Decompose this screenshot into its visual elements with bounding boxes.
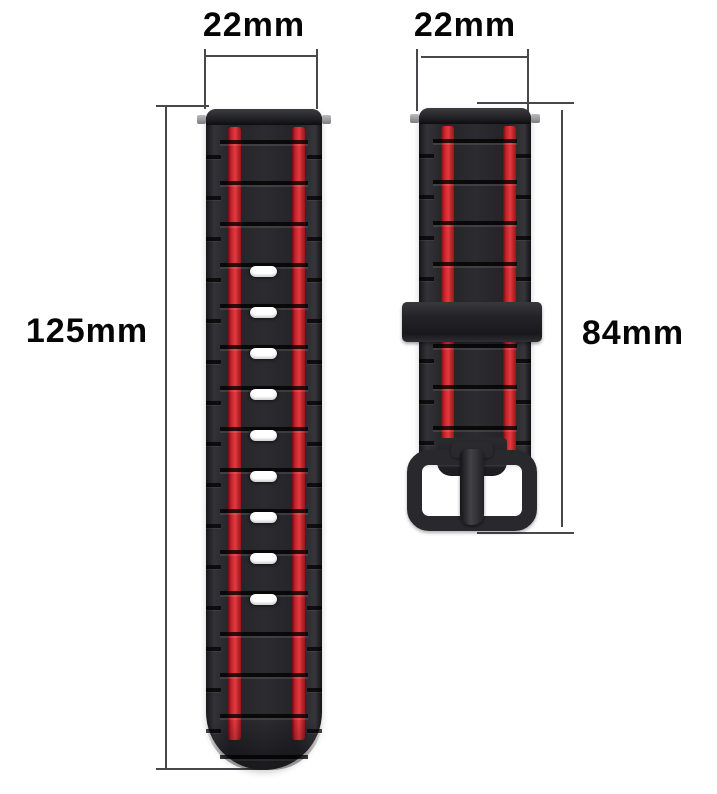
width-label-long-strap: 22mm <box>174 6 334 45</box>
length-label-long-strap: 125mm <box>7 312 167 351</box>
strap-edge-grooves <box>419 118 434 462</box>
spring-bar-pin <box>322 115 331 124</box>
product-dimension-diagram: 22mm 22mm 125mm 84mm <box>0 0 717 794</box>
spring-bar-pin <box>531 114 540 123</box>
keeper-loop <box>402 302 542 342</box>
width-label-short-strap: 22mm <box>385 6 545 45</box>
strap-edge-grooves <box>206 119 221 770</box>
spring-bar-pin <box>410 114 419 123</box>
extension-line-width-short-left <box>416 49 418 111</box>
strap-link-grooves <box>220 123 308 770</box>
extension-line-width-long-left <box>204 49 206 109</box>
strap-hole <box>250 266 277 277</box>
strap-link-grooves <box>433 122 517 462</box>
strap-edge-grooves <box>307 119 322 770</box>
strap-lug-end <box>419 108 531 124</box>
tick-line-length-short-top <box>477 102 574 104</box>
strap-hole <box>250 389 277 400</box>
watch-strap-long <box>206 109 322 770</box>
tick-line-length-short-bottom <box>477 532 574 534</box>
strap-hole <box>250 512 277 523</box>
strap-hole <box>250 594 277 605</box>
watch-strap-short <box>419 108 531 462</box>
dimension-line-length-long <box>165 107 167 769</box>
strap-hole <box>250 553 277 564</box>
dimension-line-width-long <box>205 55 317 57</box>
strap-edge-grooves <box>516 118 531 462</box>
spring-bar-pin <box>197 115 206 124</box>
strap-hole <box>250 430 277 441</box>
tick-line-length-long-top <box>156 105 209 107</box>
strap-hole <box>250 348 277 359</box>
extension-line-width-long-right <box>316 49 318 109</box>
strap-lug-end <box>206 109 322 125</box>
buckle-tang <box>460 449 484 525</box>
strap-hole <box>250 307 277 318</box>
length-label-short-strap: 84mm <box>553 314 713 353</box>
strap-hole <box>250 471 277 482</box>
dimension-line-width-short <box>421 56 527 58</box>
